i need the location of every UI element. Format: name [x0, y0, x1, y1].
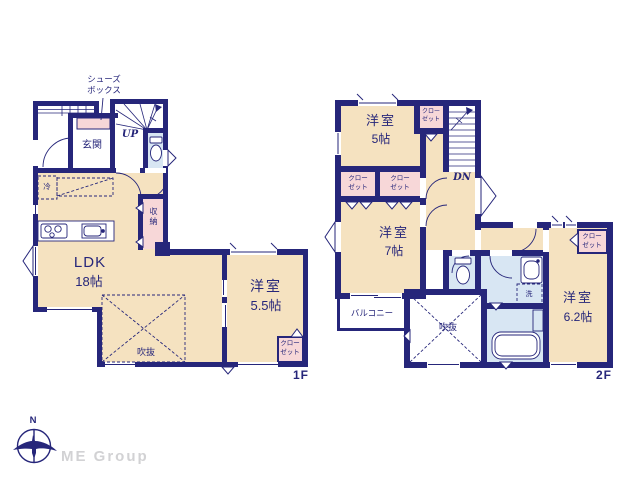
ldk-size-label: 18帖 [75, 275, 102, 288]
balcony-label: バルコニー [351, 309, 393, 318]
kitchen-counter-icon [38, 221, 114, 241]
shoes-box-label-line2: ボックス [87, 86, 121, 95]
closetA-label-line1: クロー [348, 176, 368, 183]
stairs-down-label: DN [453, 173, 471, 183]
compass-icon [13, 429, 57, 463]
bedroom55-name-label: 洋室 [250, 279, 282, 293]
floorplan-document: シューズ ボックス 玄関 UP 冷 収納 LDK 18帖 洋室 5.5帖 吹抜 … [0, 0, 640, 480]
storage-label: 収納 [149, 207, 157, 227]
shoes-box-label-line1: シューズ [87, 75, 121, 84]
closet5-label-line2: ゼット [422, 117, 440, 123]
laundry-label: 洗 [526, 291, 533, 298]
bedroom7-name-label: 洋室 [379, 226, 409, 239]
compass-north-label: N [30, 416, 37, 426]
bedroom5-size-label: 5帖 [372, 133, 391, 145]
closet5-label-line1: クロー [422, 109, 440, 115]
floor2-plan [325, 94, 613, 369]
fridge-label: 冷 [43, 183, 51, 191]
void-label-2f: 吹抜 [439, 323, 457, 332]
closet-label-1f-line1: クロー [280, 341, 300, 348]
brand-logo-text: ME Group [61, 448, 149, 465]
floorplan-drawing [0, 0, 640, 480]
closetA-label-line2: ゼット [348, 185, 368, 192]
stairs-up-label: UP [122, 130, 138, 140]
bedroom55-size-label: 5.5帖 [250, 299, 281, 312]
closet62-label-line1: クロー [582, 234, 602, 241]
bedroom5-name-label: 洋室 [366, 114, 396, 127]
toilet-icon-1f [150, 137, 162, 161]
closet62-label-line2: ゼット [582, 243, 602, 250]
closetB-label-line2: ゼット [390, 185, 410, 192]
bedroom62-name-label: 洋室 [563, 291, 593, 304]
bedroom7-size-label: 7帖 [385, 245, 404, 257]
ldk-name-label: LDK [74, 255, 106, 270]
washbasin-icon [521, 257, 542, 283]
closetB-label-line1: クロー [390, 176, 410, 183]
toilet-icon-2f [455, 258, 471, 284]
entrance-label: 玄関 [82, 141, 102, 151]
bedroom62-size-label: 6.2帖 [564, 311, 593, 323]
floor2-label: 2F [596, 369, 612, 381]
floor1-label: 1F [293, 369, 309, 381]
closet-label-1f-line2: ゼット [280, 350, 300, 357]
void-label-1f: 吹抜 [137, 348, 155, 357]
floor1-plan [23, 98, 308, 374]
